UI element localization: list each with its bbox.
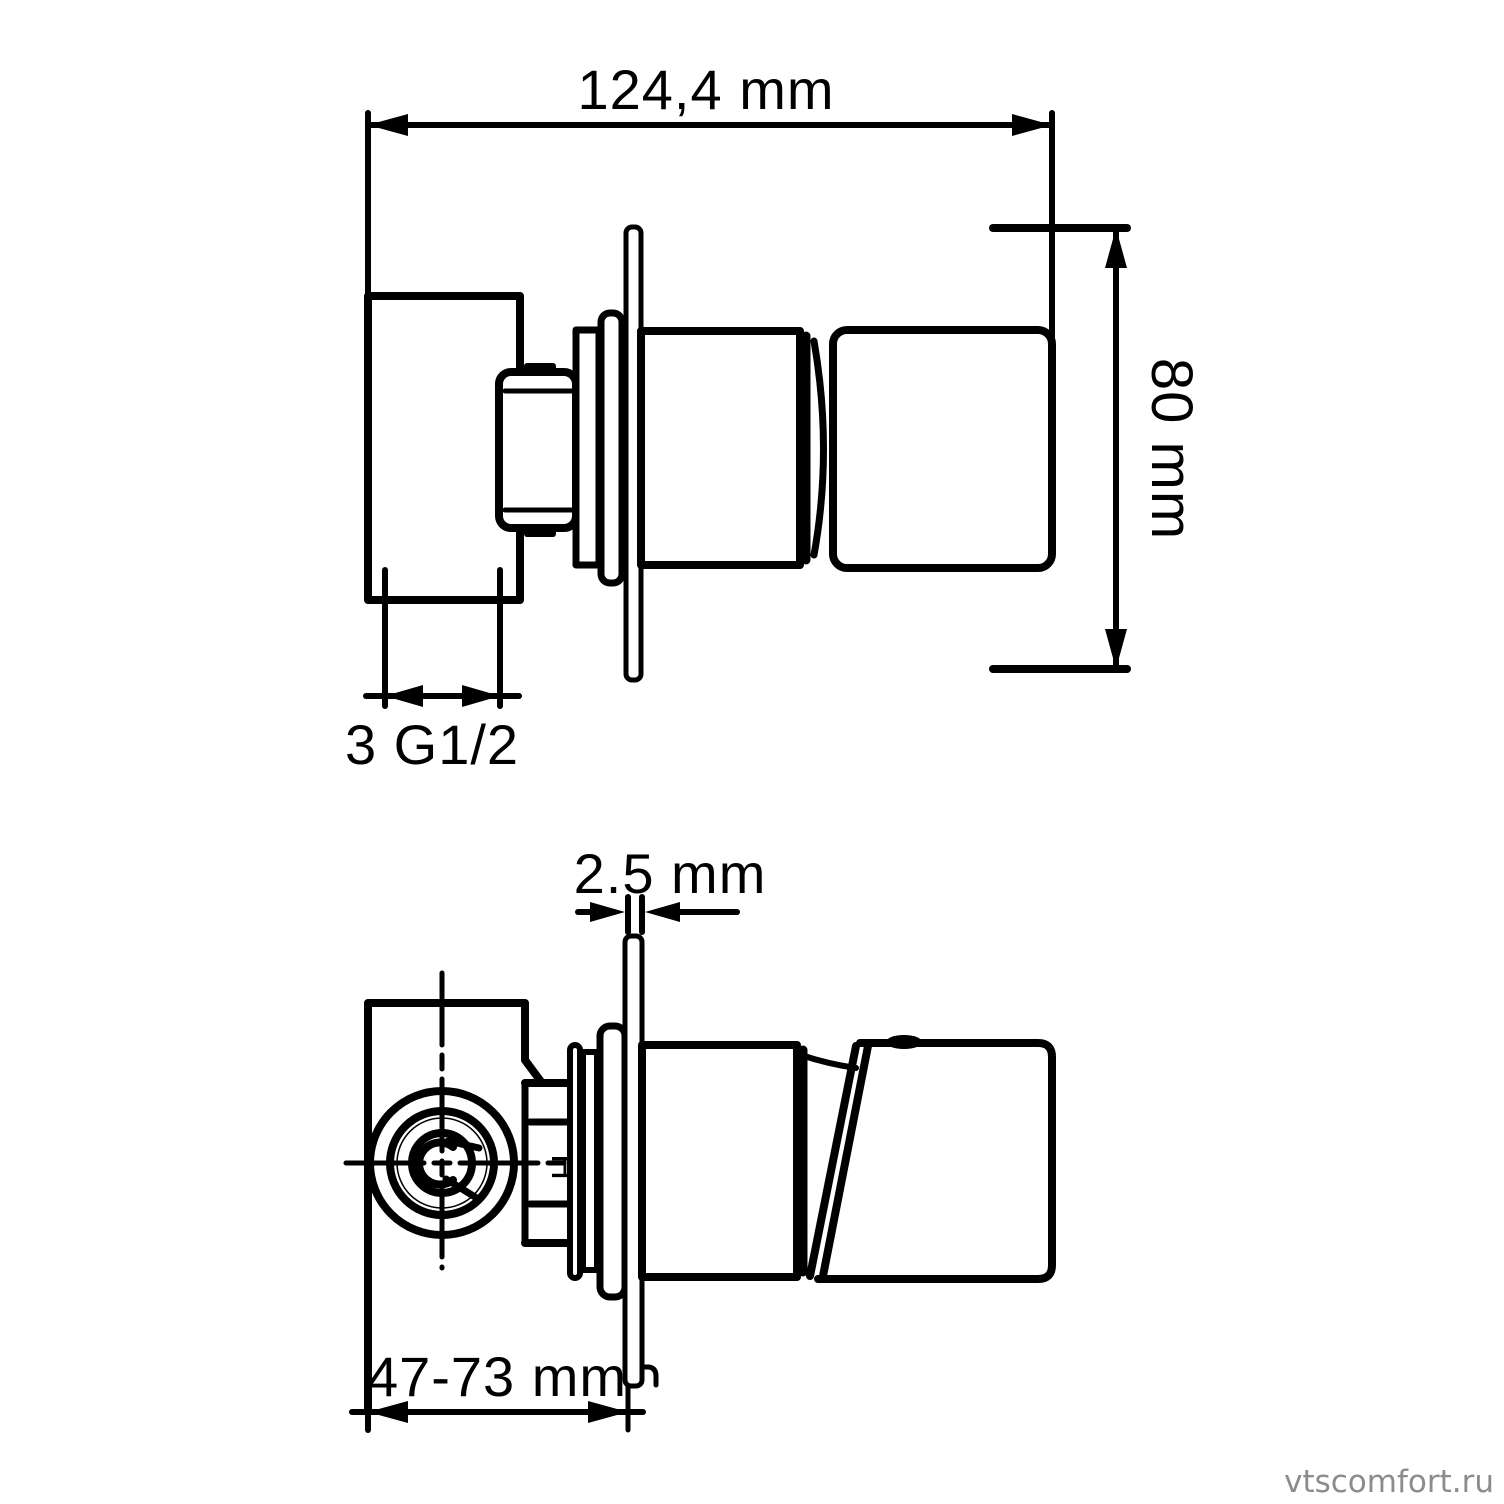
arrowhead-left [385,685,423,707]
sleeve-outline [641,331,800,565]
valve-installation-diagram: 124,4 mm [0,0,1504,1504]
watermark-text: vtscomfort.ru [1284,1464,1494,1500]
handle-sleeve-plan [642,1045,856,1277]
flange-ring-inner [576,330,599,565]
arrowhead-top [1105,228,1127,268]
connection-label: 3 G1/2 [345,713,519,776]
arrowhead-left [368,114,408,136]
sleeve-outline-plan [642,1045,797,1277]
technical-drawing-page: 124,4 mm [0,0,1504,1504]
handle-sleeve [641,331,824,565]
handle-knob-plan [810,1035,1052,1279]
depth-range-label: 47-73 mm [367,1345,627,1408]
arrowhead-left [590,902,625,922]
width-dimension-label: 124,4 mm [578,58,835,121]
plate-thickness-dimension: 2.5 mm [574,842,767,932]
flange-ring-outer-plan [600,1026,625,1297]
arrowhead-right [1012,114,1052,136]
plate-thickness-label: 2.5 mm [574,842,767,905]
handle-knob [833,330,1052,568]
flange-ring-inner-plan [583,1052,597,1270]
arrowhead-right [462,685,500,707]
cartridge-face-plan [570,1045,580,1278]
knob-index-dot [886,1035,922,1049]
arrowhead-bottom [1105,629,1127,669]
flange-ring-outer [601,313,622,583]
side-view: 124,4 mm [345,58,1204,776]
cartridge-hub [499,363,576,537]
top-view: 2.5 mm [346,842,1052,1430]
depth-range-dimension: 47-73 mm [352,1345,643,1430]
cartridge-outline [499,372,576,528]
sleeve-lever-curve [801,1055,856,1068]
sleeve-front-arc [814,341,824,555]
height-dimension-label: 80 mm [1139,358,1204,540]
